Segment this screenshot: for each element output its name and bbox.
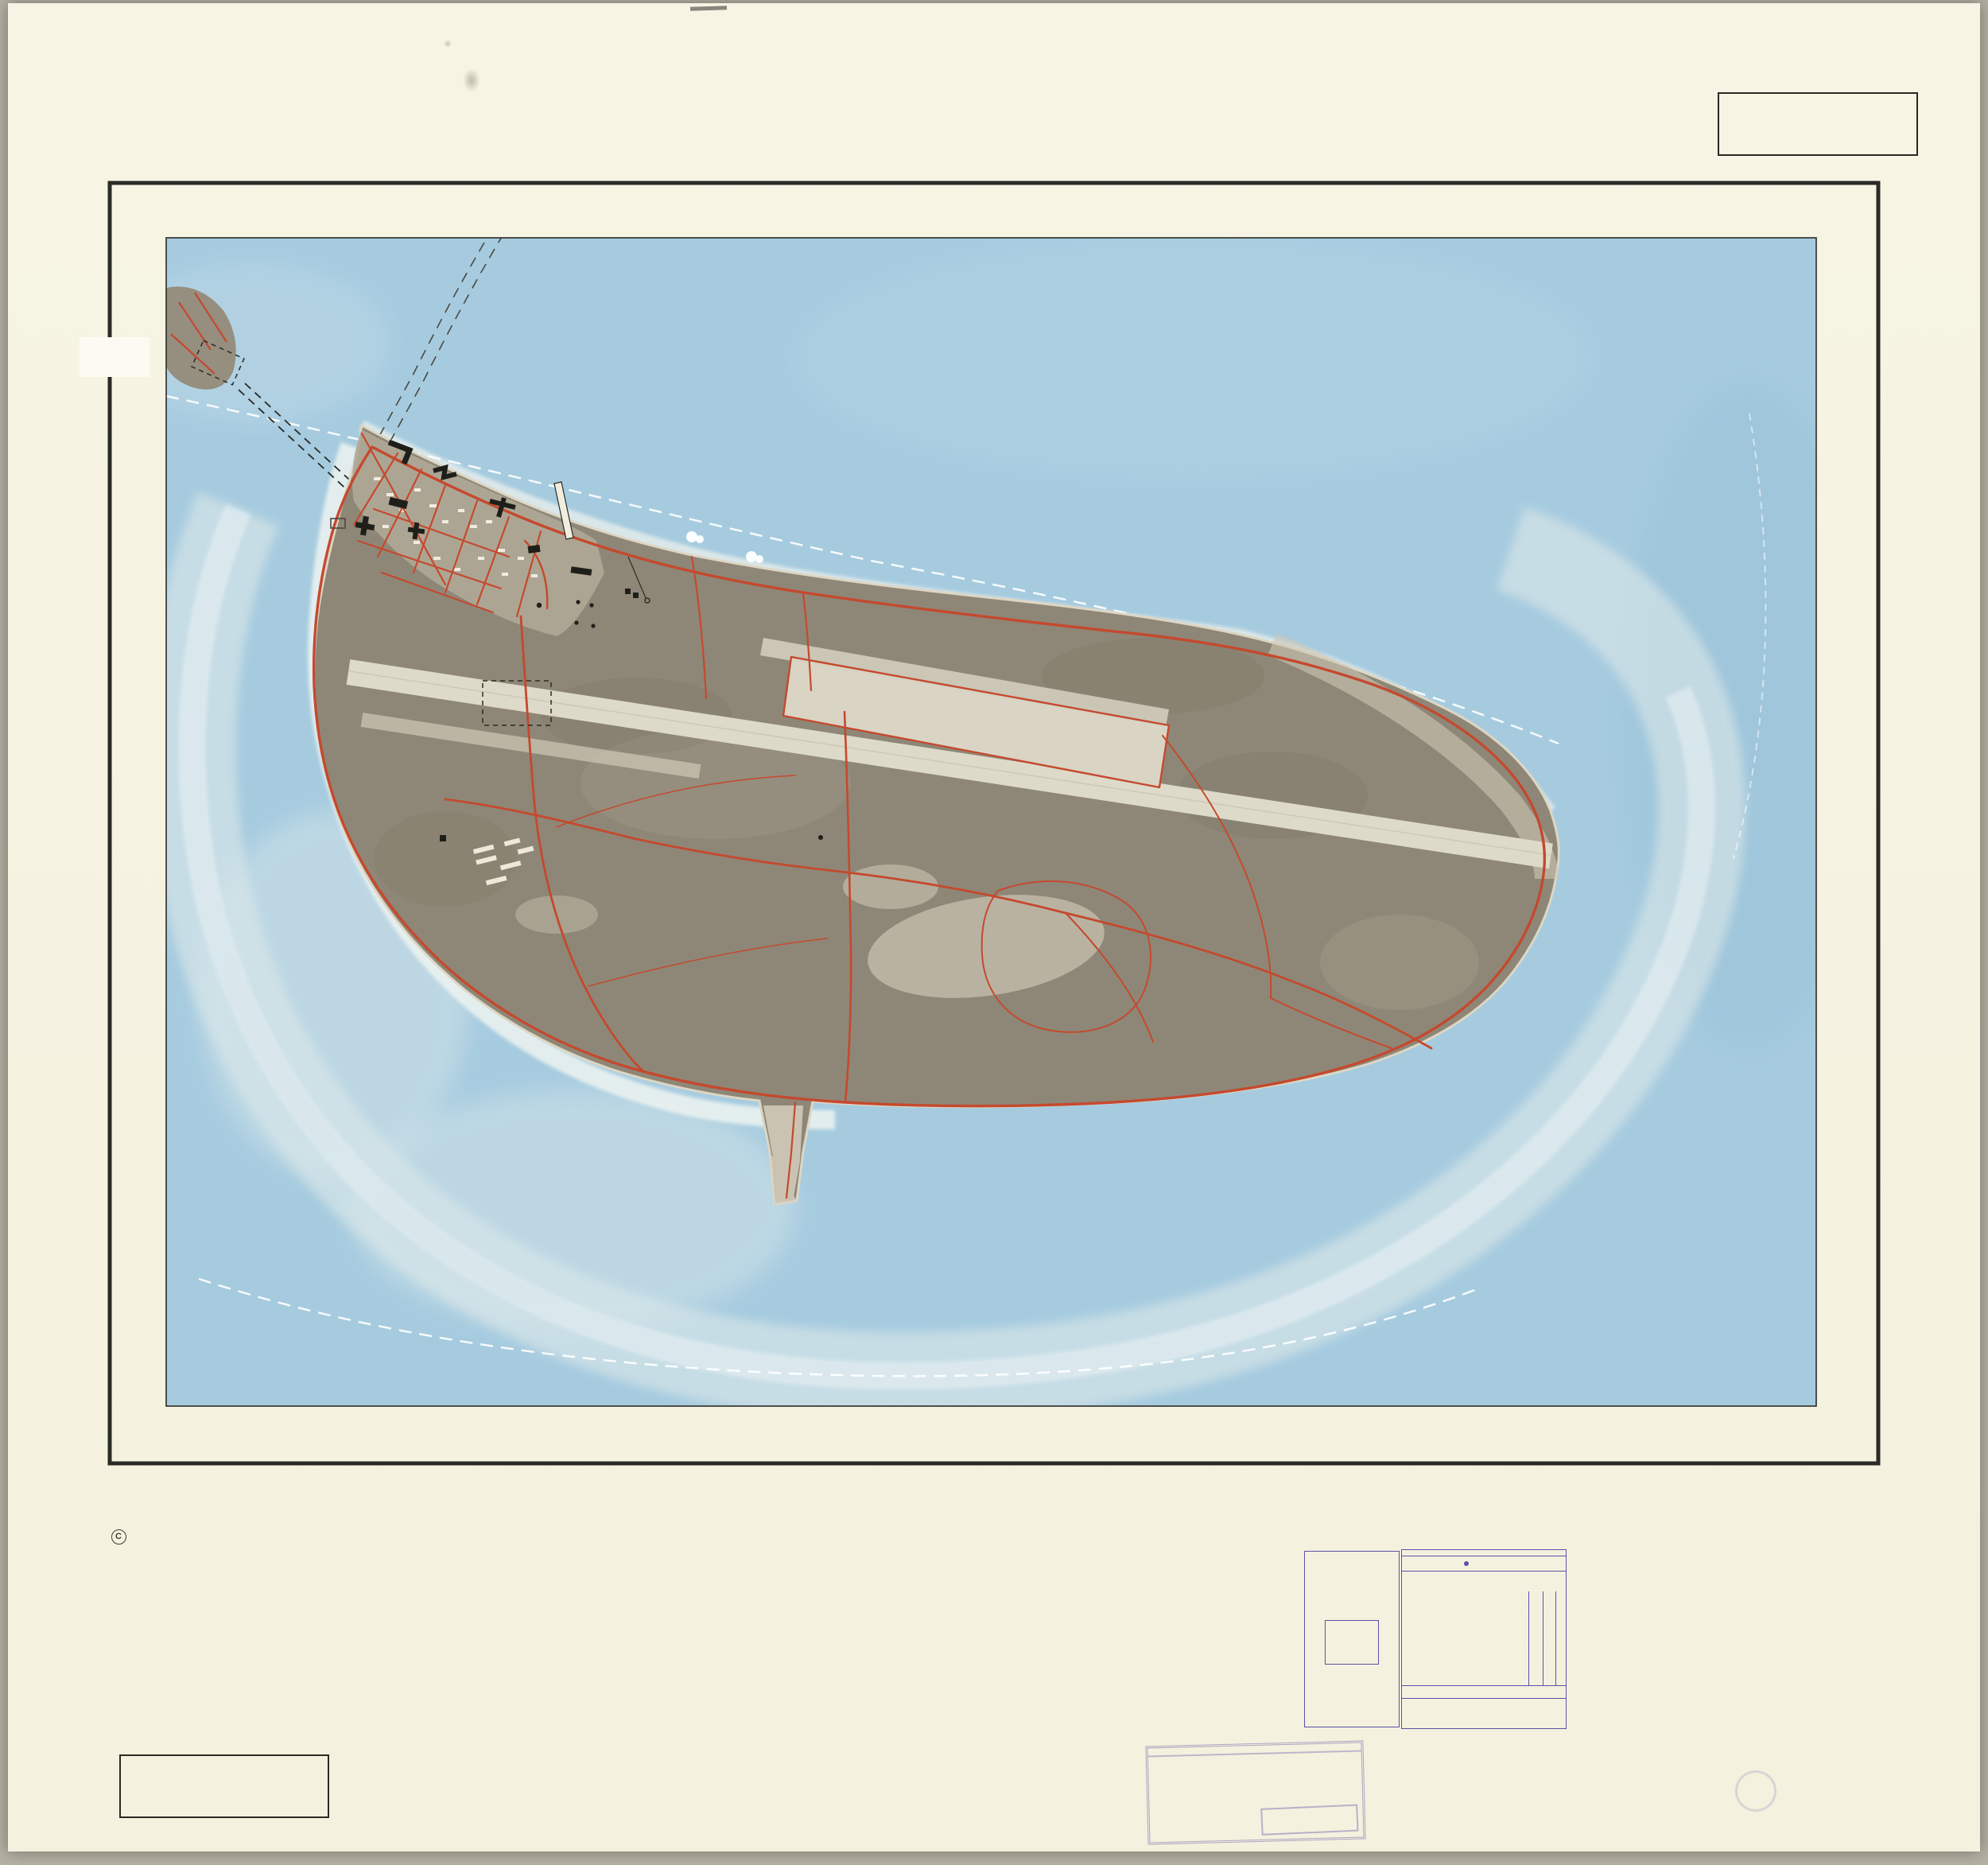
trim-mark [690, 6, 727, 11]
paper-smudge [444, 40, 452, 48]
square-id-value [1325, 1620, 1379, 1665]
map-artwork [0, 0, 1988, 1865]
stamp-title [1148, 1743, 1361, 1758]
sample-point-row [1402, 1556, 1566, 1572]
stamp-date-label [1148, 1758, 1361, 1764]
column-rule [1555, 1591, 1556, 1685]
grid-zone-box [1304, 1551, 1400, 1727]
column-rule [1528, 1591, 1529, 1685]
series-box-footer [119, 1754, 329, 1818]
copyright-icon: C [111, 1529, 126, 1544]
sample-point-dot [1464, 1561, 1469, 1566]
sea-light [119, 262, 390, 422]
library-stamp [1145, 1740, 1365, 1844]
paper-smudge [463, 68, 480, 92]
map-canvas [111, 183, 1877, 1406]
sea-light [795, 239, 1590, 477]
stamp-file-label [1148, 1758, 1361, 1764]
copyright-note: C [111, 1529, 130, 1544]
column-rule [1543, 1591, 1543, 1685]
faint-stamp-circle [1735, 1770, 1776, 1812]
sample-reference-row [1402, 1685, 1566, 1699]
lagoon-shoal [350, 1090, 795, 1328]
refbox-steps [1402, 1591, 1566, 1686]
scan-defect [80, 337, 149, 377]
reference-box [1401, 1549, 1567, 1729]
series-box [1718, 92, 1918, 156]
stamp-date-value [1260, 1805, 1358, 1836]
